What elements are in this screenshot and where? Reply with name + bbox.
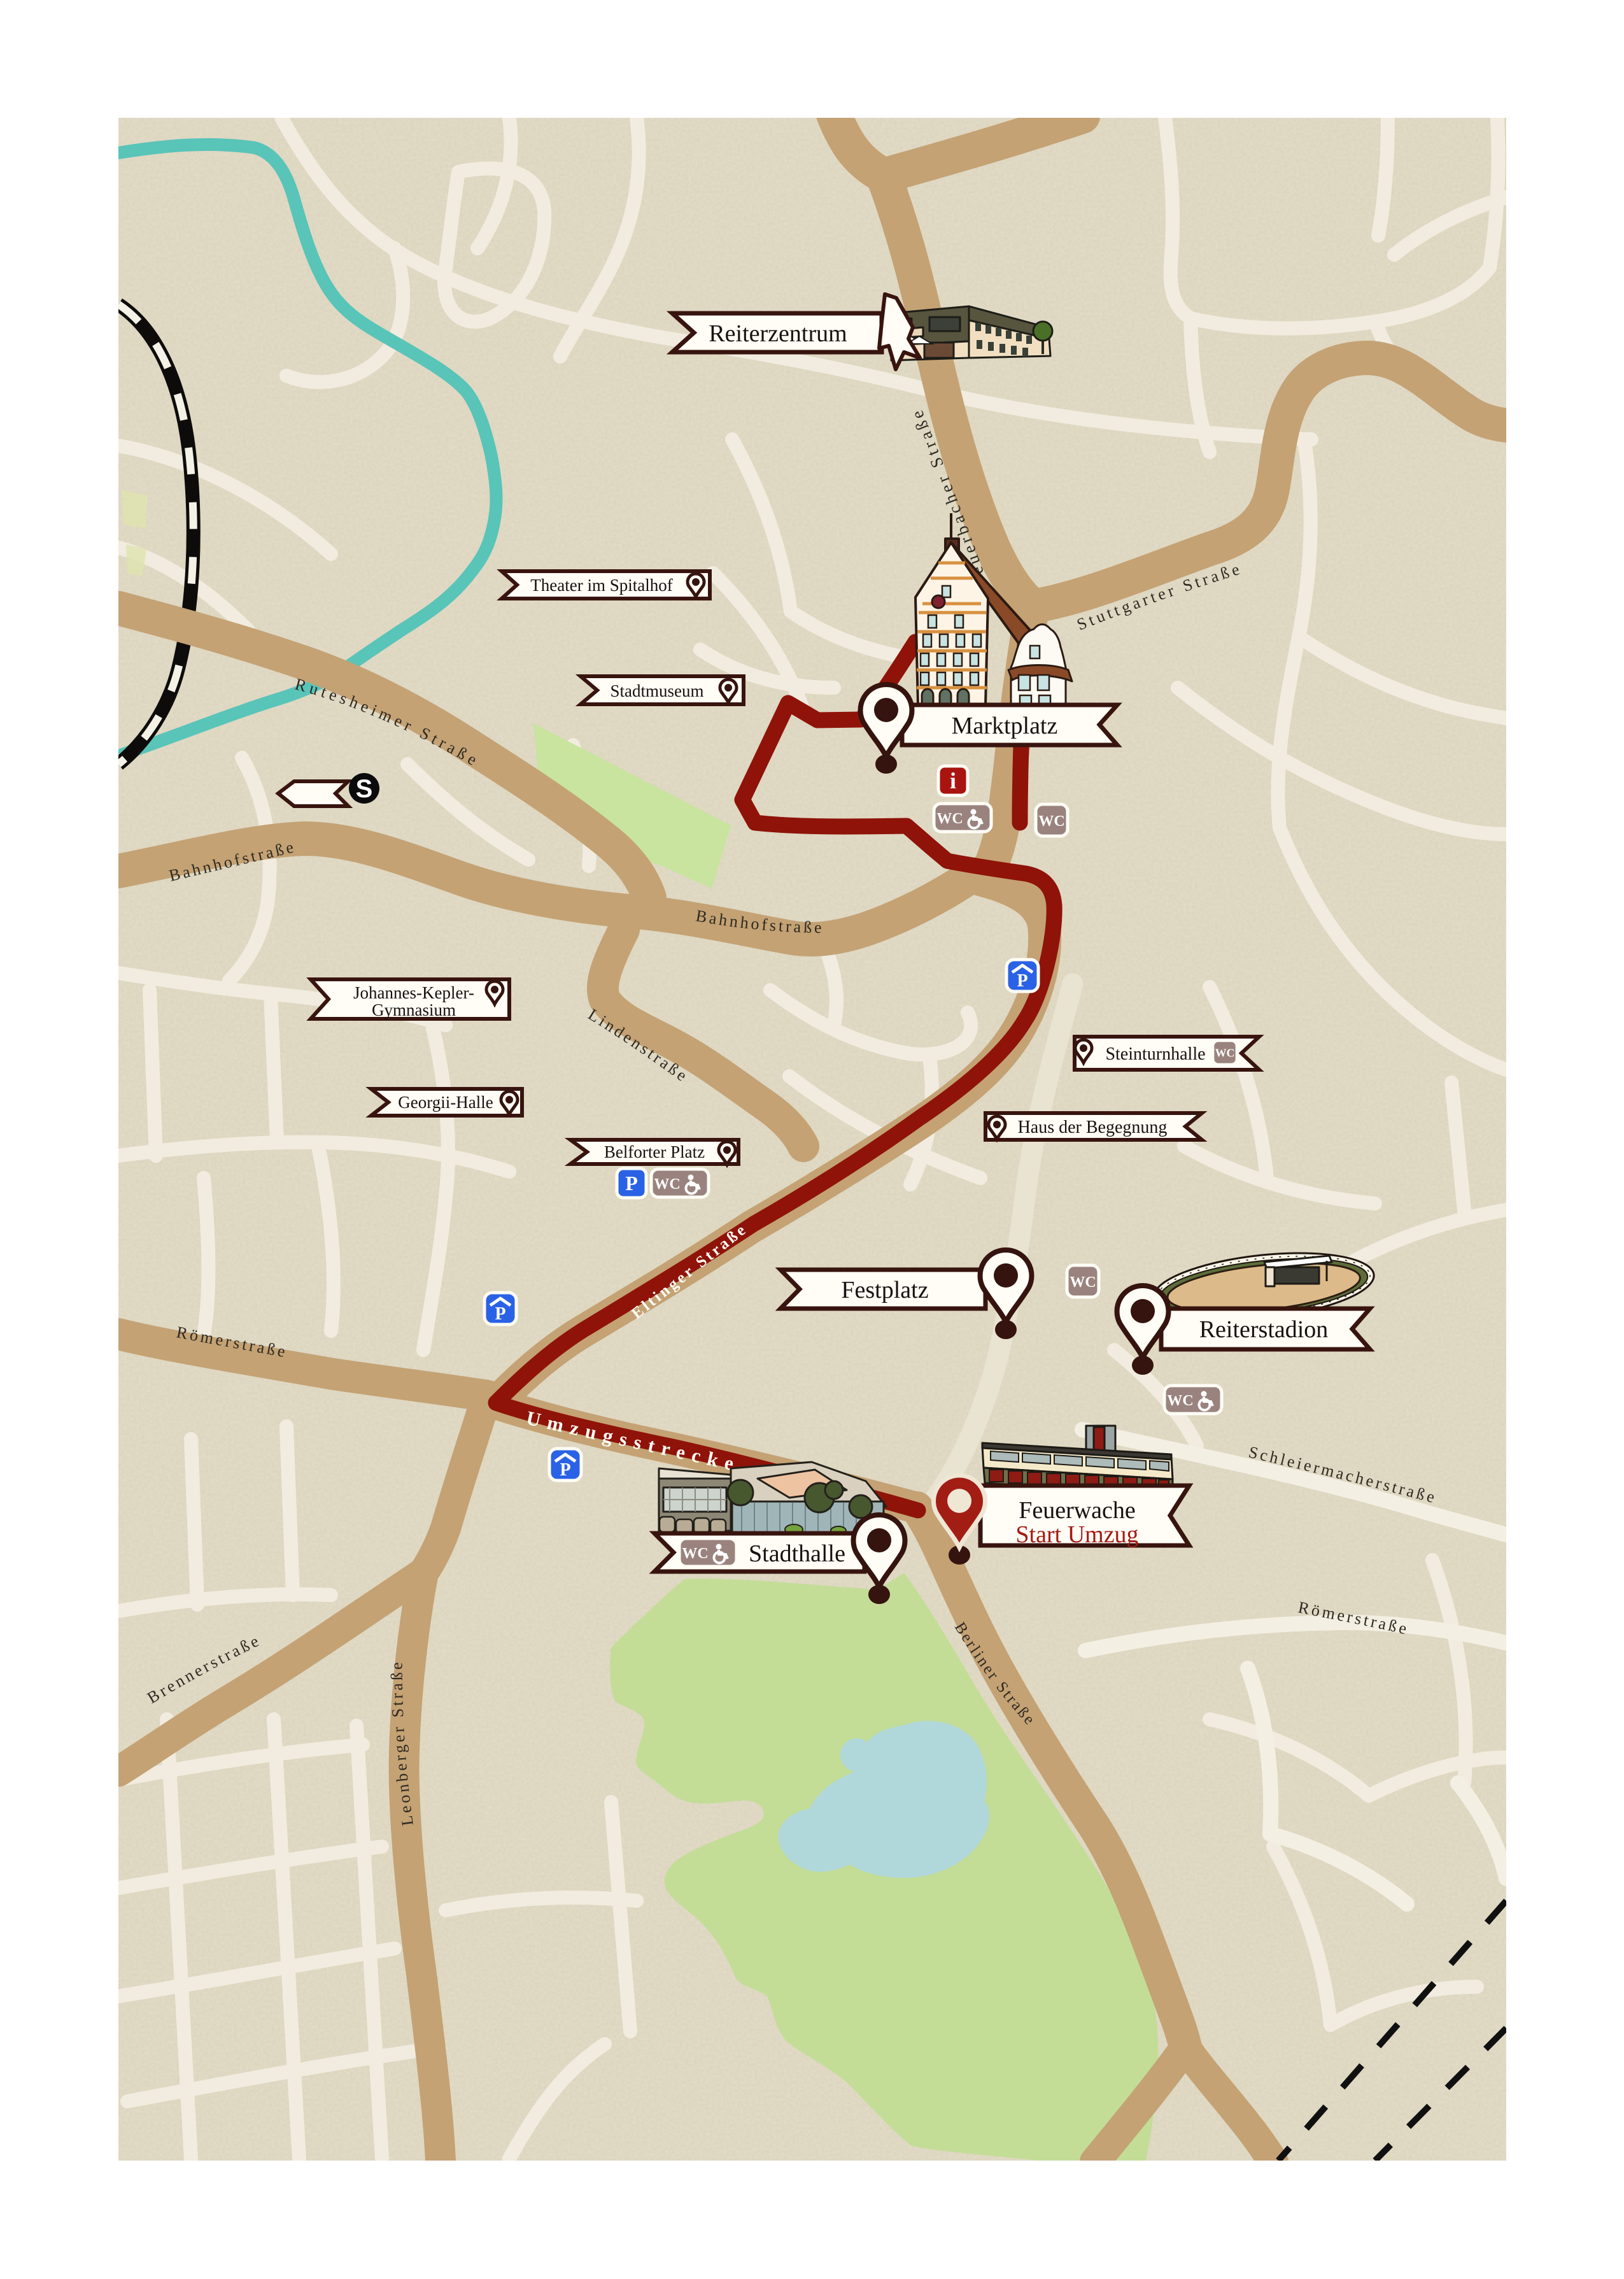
svg-text:Stadtmuseum: Stadtmuseum <box>611 681 704 700</box>
svg-text:S: S <box>356 775 373 803</box>
svg-text:Johannes-Kepler-: Johannes-Kepler- <box>353 983 474 1002</box>
svg-text:Theater im Spitalhof: Theater im Spitalhof <box>530 576 672 595</box>
svg-text:Marktplatz: Marktplatz <box>952 713 1058 739</box>
svg-text:Belforter Platz: Belforter Platz <box>604 1142 705 1161</box>
svg-text:Start Umzug: Start Umzug <box>1015 1521 1138 1548</box>
svg-text:Reiterstadion: Reiterstadion <box>1199 1316 1329 1343</box>
svg-text:Stadthalle: Stadthalle <box>749 1540 845 1567</box>
svg-text:Georgii-Halle: Georgii-Halle <box>398 1093 493 1112</box>
svg-text:Steinturnhalle: Steinturnhalle <box>1105 1044 1205 1064</box>
svg-text:Reiterzentrum: Reiterzentrum <box>709 320 847 347</box>
svg-text:Feuerwache: Feuerwache <box>1019 1497 1136 1524</box>
svg-text:Gymnasium: Gymnasium <box>372 1000 456 1019</box>
svg-text:Festplatz: Festplatz <box>841 1277 928 1303</box>
svg-text:Haus der Begegnung: Haus der Begegnung <box>1018 1118 1168 1137</box>
